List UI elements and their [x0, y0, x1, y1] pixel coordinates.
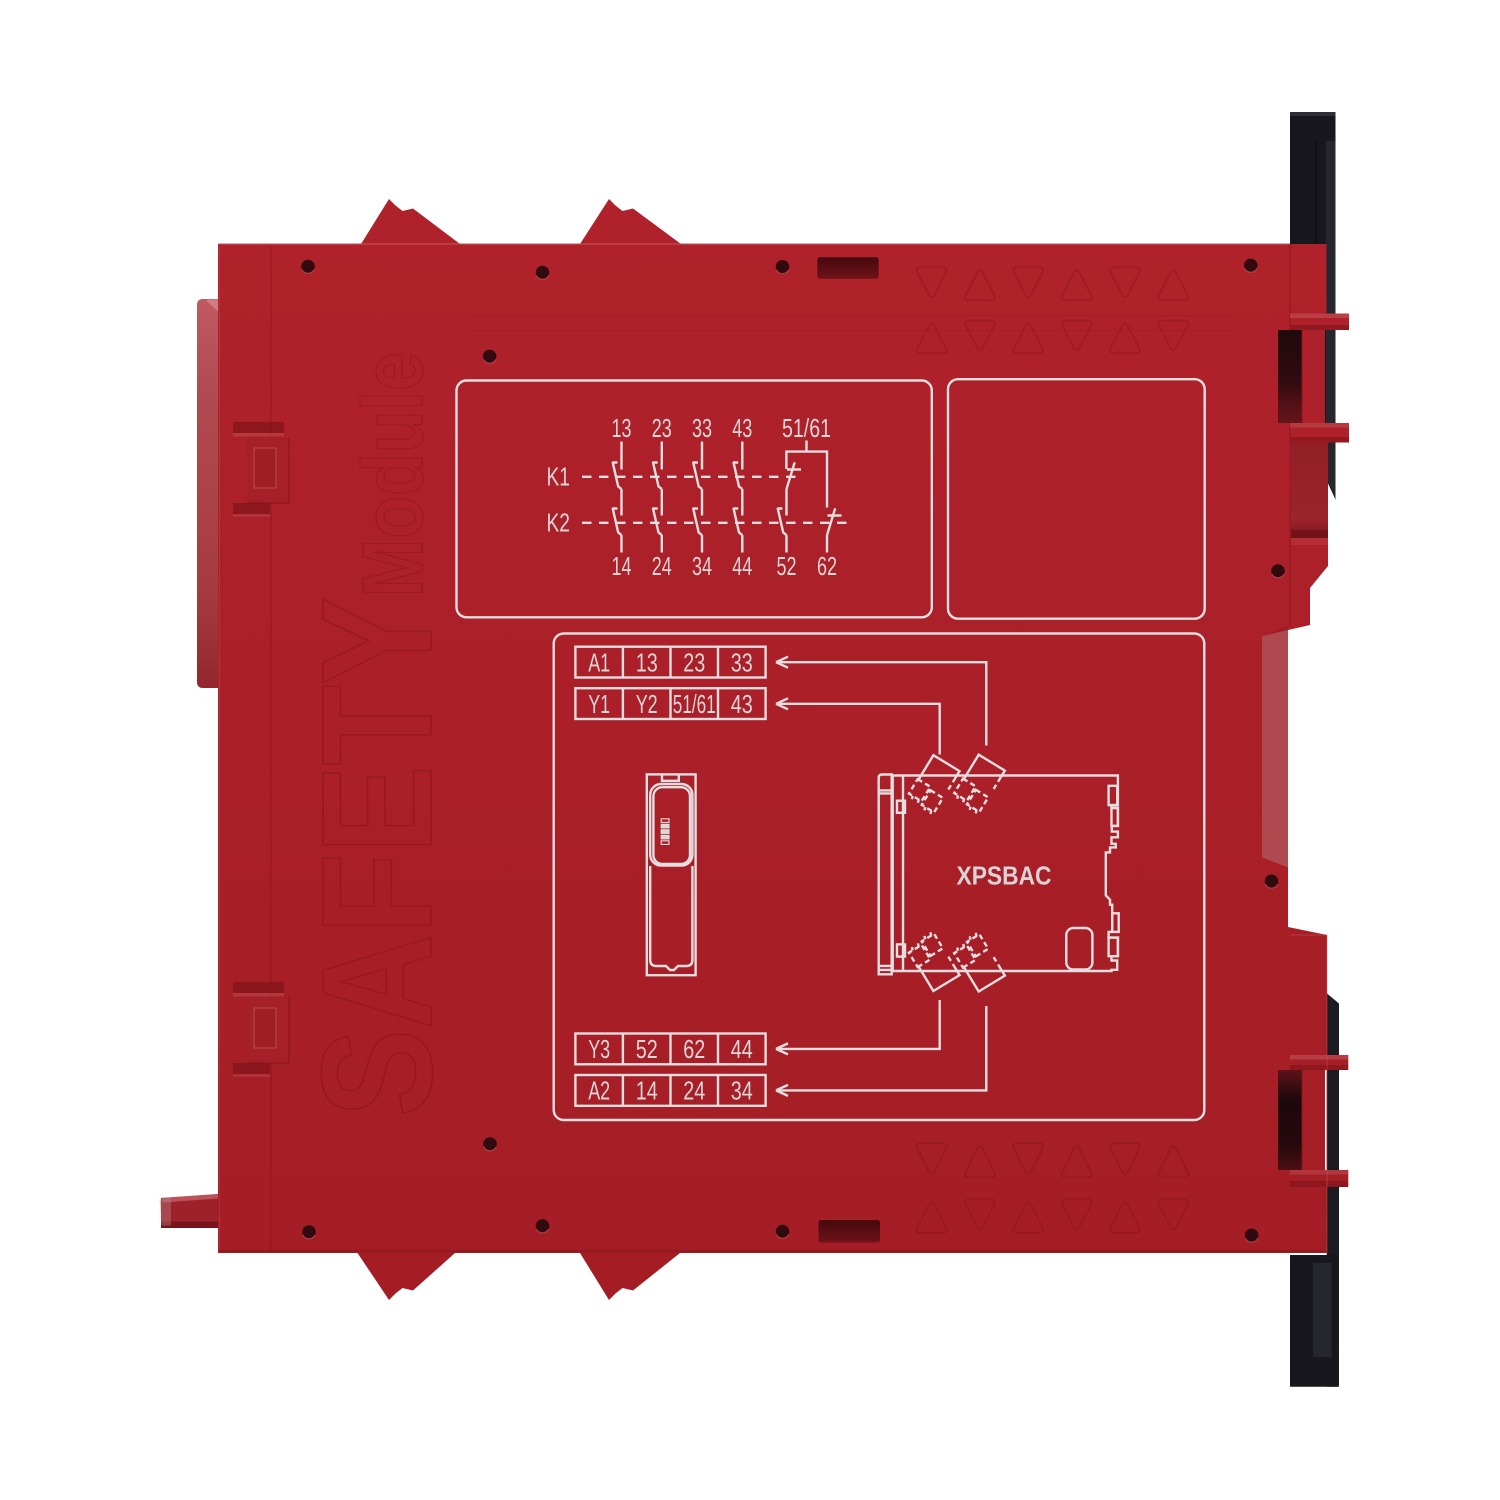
svg-text:43: 43 — [731, 689, 753, 719]
svg-text:23: 23 — [652, 413, 672, 443]
svg-text:13: 13 — [636, 647, 658, 677]
svg-text:24: 24 — [652, 551, 672, 581]
svg-text:Module: Module — [346, 352, 441, 597]
svg-text:Y2: Y2 — [636, 689, 658, 719]
svg-text:A1: A1 — [588, 647, 610, 677]
svg-text:14: 14 — [636, 1076, 658, 1106]
svg-text:A2: A2 — [588, 1076, 610, 1106]
svg-text:34: 34 — [731, 1076, 753, 1106]
svg-text:33: 33 — [692, 413, 712, 443]
svg-text:K1: K1 — [547, 462, 571, 492]
svg-text:23: 23 — [683, 647, 705, 677]
svg-text:Y3: Y3 — [588, 1034, 610, 1064]
svg-text:51/61: 51/61 — [782, 413, 831, 443]
svg-text:51/61: 51/61 — [673, 689, 716, 719]
svg-text:K2: K2 — [547, 508, 571, 538]
svg-text:SAFETY: SAFETY — [290, 597, 465, 1117]
svg-text:34: 34 — [692, 551, 712, 581]
svg-text:44: 44 — [732, 551, 752, 581]
svg-text:52: 52 — [777, 551, 797, 581]
svg-text:62: 62 — [817, 551, 837, 581]
svg-text:52: 52 — [636, 1034, 658, 1064]
svg-text:24: 24 — [683, 1076, 705, 1106]
svg-text:XPSBAC: XPSBAC — [957, 863, 1052, 891]
svg-text:14: 14 — [612, 551, 632, 581]
svg-text:44: 44 — [731, 1034, 753, 1064]
svg-text:13: 13 — [612, 413, 632, 443]
svg-text:62: 62 — [683, 1034, 705, 1064]
svg-text:43: 43 — [732, 413, 752, 443]
svg-text:33: 33 — [731, 647, 753, 677]
svg-text:Y1: Y1 — [588, 689, 610, 719]
